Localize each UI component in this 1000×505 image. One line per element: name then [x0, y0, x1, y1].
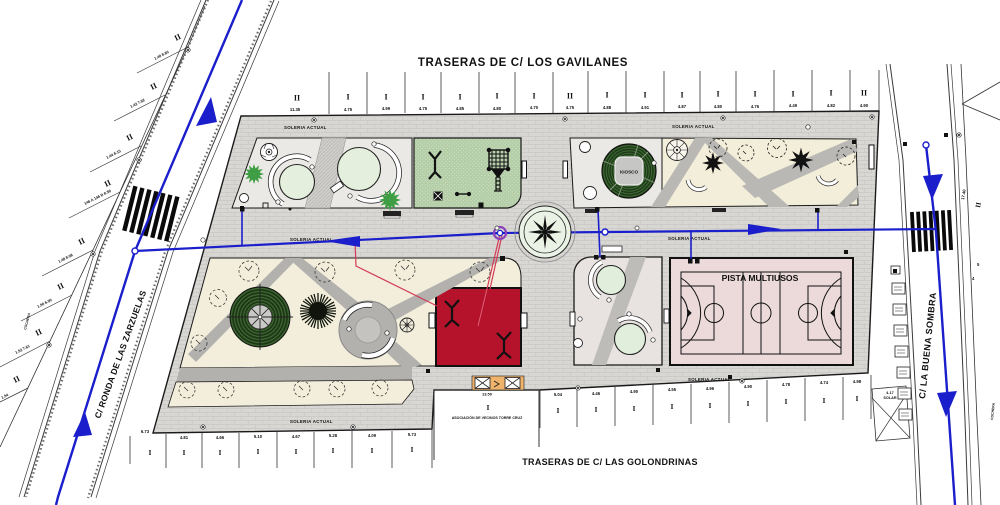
svg-text:6.73: 6.73: [141, 429, 150, 434]
svg-text:I: I: [295, 448, 298, 456]
svg-text:I: I: [183, 449, 186, 457]
svg-text:4.78: 4.78: [782, 382, 791, 387]
svg-text:I: I: [532, 92, 535, 101]
svg-text:I: I: [495, 92, 498, 101]
svg-text:4.17: 4.17: [886, 391, 893, 395]
svg-text:I: I: [753, 90, 756, 99]
svg-text:4.81: 4.81: [180, 435, 189, 440]
svg-text:II: II: [294, 94, 300, 103]
svg-text:I: I: [791, 90, 794, 99]
svg-text:4.75: 4.75: [566, 105, 575, 110]
svg-text:4.55: 4.55: [668, 387, 677, 392]
svg-text:SOLAR: SOLAR: [883, 396, 897, 400]
svg-text:SOLERIA ACTUAL: SOLERIA ACTUAL: [672, 124, 715, 129]
svg-text:5.73: 5.73: [408, 432, 417, 437]
svg-text:SOLERIA ACTUAL: SOLERIA ACTUAL: [284, 125, 327, 130]
svg-text:I: I: [671, 403, 674, 411]
svg-text:I: I: [823, 397, 826, 405]
svg-text:I: I: [716, 90, 719, 99]
svg-text:4.90: 4.90: [744, 384, 753, 389]
svg-text:TRASERAS DE C/ LAS GOLONDRINAS: TRASERAS DE C/ LAS GOLONDRINAS: [522, 457, 698, 467]
svg-text:4.90: 4.90: [860, 103, 869, 108]
svg-text:SOLERIA ACTUAL: SOLERIA ACTUAL: [290, 419, 333, 424]
svg-text:4.82: 4.82: [827, 103, 836, 108]
svg-text:11.35: 11.35: [290, 107, 301, 112]
svg-text:4.85: 4.85: [456, 106, 465, 111]
svg-text:4.80: 4.80: [714, 104, 723, 109]
svg-text:SOLERIA ACTUAL: SOLERIA ACTUAL: [668, 236, 711, 241]
svg-text:4.70: 4.70: [530, 105, 539, 110]
svg-text:4.76: 4.76: [751, 104, 760, 109]
svg-text:4.75: 4.75: [344, 107, 353, 112]
svg-text:I: I: [384, 93, 387, 102]
svg-text:I: I: [411, 446, 414, 454]
svg-text:4.67: 4.67: [292, 434, 301, 439]
svg-text:I: I: [829, 89, 832, 98]
svg-text:4.91: 4.91: [641, 105, 650, 110]
svg-text:I: I: [643, 91, 646, 100]
svg-text:4.87: 4.87: [678, 104, 687, 109]
svg-text:ASOCIACIÓN DE VECINOS TORRE: ASOCIACIÓN DE VECINOS TORRE CRUZ: [452, 415, 523, 420]
svg-text:4.49: 4.49: [789, 103, 798, 108]
svg-text:4.88: 4.88: [603, 105, 612, 110]
svg-text:I: I: [856, 395, 859, 403]
svg-text:4.98: 4.98: [853, 379, 862, 384]
svg-text:I: I: [747, 400, 750, 408]
svg-text:I: I: [785, 398, 788, 406]
svg-text:4.80: 4.80: [493, 106, 502, 111]
svg-text:I: I: [595, 406, 598, 414]
svg-text:I: I: [633, 405, 636, 413]
svg-text:5.10: 5.10: [254, 434, 263, 439]
svg-text:I: I: [257, 448, 260, 456]
svg-text:4.09: 4.09: [368, 433, 377, 438]
svg-text:5.04: 5.04: [554, 392, 563, 397]
svg-text:I: I: [219, 449, 222, 457]
svg-text:SOLERIA ACTUAL: SOLERIA ACTUAL: [688, 377, 731, 382]
svg-text:I: I: [421, 93, 424, 102]
svg-text:4.66: 4.66: [216, 435, 225, 440]
svg-text:I: I: [371, 447, 374, 455]
svg-text:I: I: [680, 91, 683, 100]
svg-text:PISTA MULTIUSOS: PISTA MULTIUSOS: [722, 273, 799, 283]
svg-text:I: I: [487, 404, 490, 412]
svg-text:TRASERAS DE C/ LOS GAVILANES: TRASERAS DE C/ LOS GAVILANES: [418, 57, 628, 69]
svg-text:13.50: 13.50: [482, 392, 493, 397]
svg-text:I: I: [605, 91, 608, 100]
svg-text:I: I: [709, 402, 712, 410]
svg-text:4.96: 4.96: [706, 386, 715, 391]
svg-text:II: II: [861, 89, 867, 98]
svg-text:II: II: [567, 92, 573, 101]
svg-text:I: I: [149, 449, 152, 457]
svg-text:I: I: [346, 93, 349, 102]
svg-text:4.74: 4.74: [820, 380, 829, 385]
svg-text:I: I: [557, 407, 560, 415]
svg-text:4.46: 4.46: [592, 391, 601, 396]
svg-text:4.99: 4.99: [382, 106, 391, 111]
svg-text:I: I: [458, 93, 461, 102]
svg-text:4.75: 4.75: [419, 106, 428, 111]
svg-text:5.28: 5.28: [329, 433, 338, 438]
svg-text:4.90: 4.90: [630, 389, 639, 394]
svg-text:KIOSCO: KIOSCO: [620, 170, 639, 175]
svg-text:I: I: [332, 447, 335, 455]
